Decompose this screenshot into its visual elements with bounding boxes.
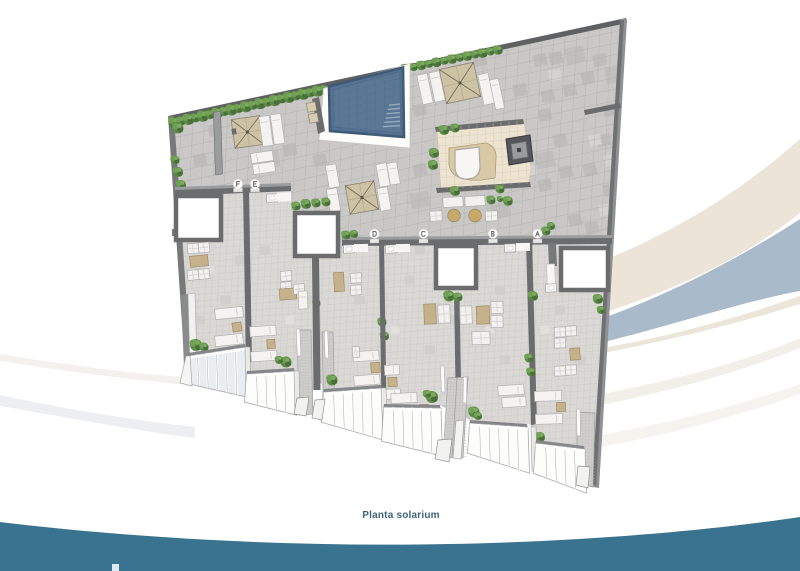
svg-text:Planta solarium: Planta solarium [362, 510, 439, 521]
